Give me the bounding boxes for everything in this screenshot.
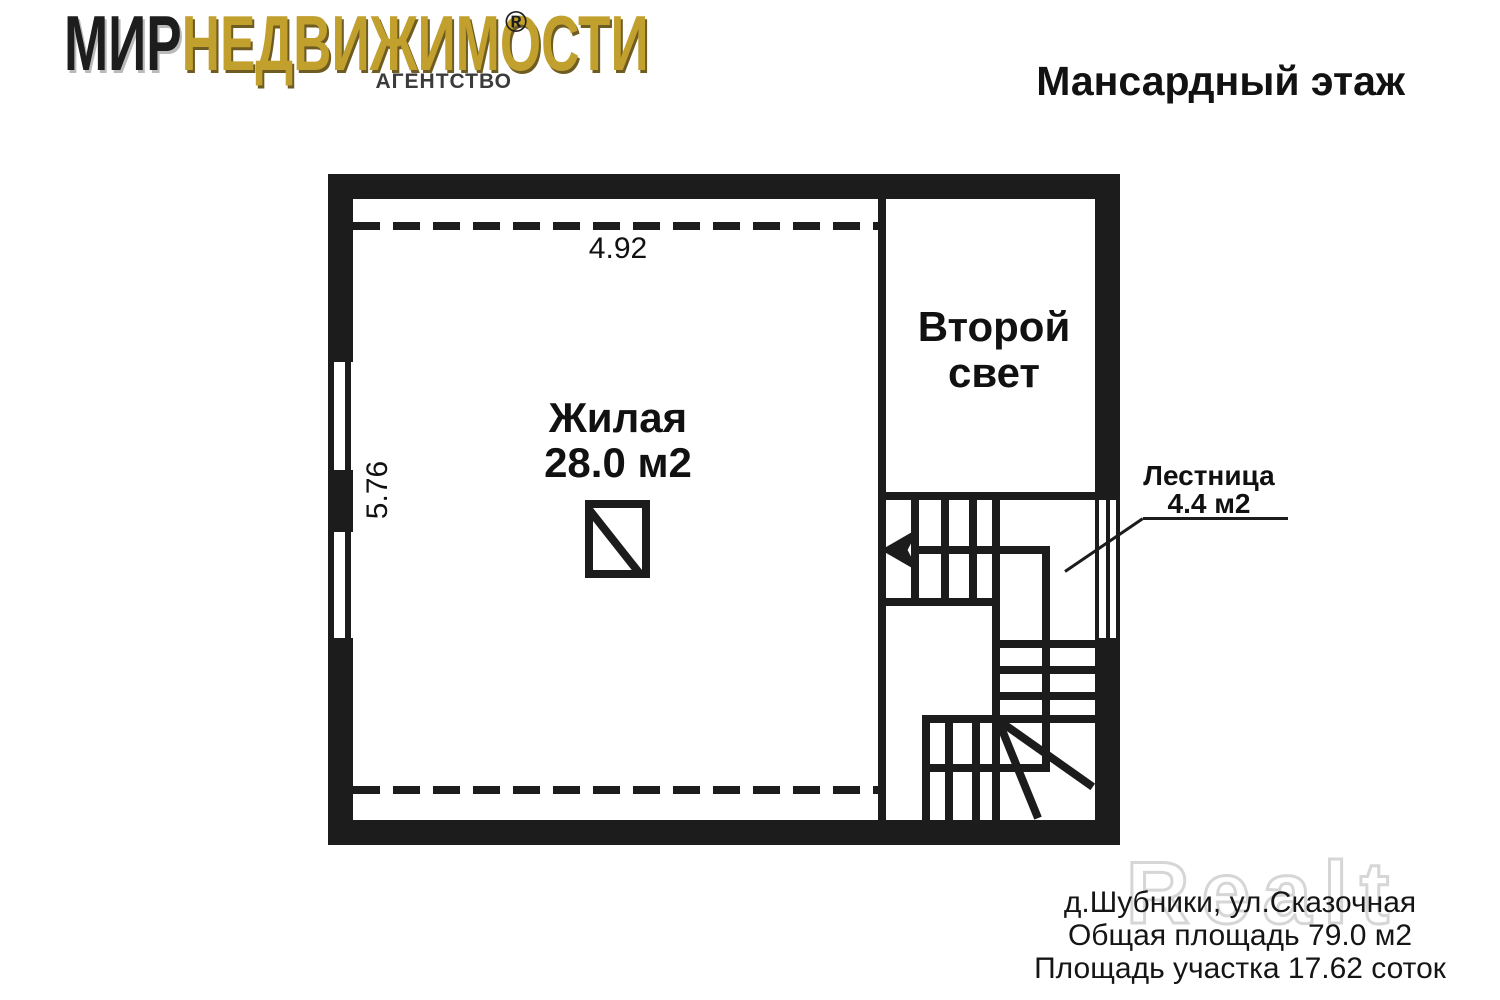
stairs-name: Лестница: [1109, 462, 1309, 490]
room-name-line1: Второй: [894, 304, 1094, 350]
property-lot-area: Площадь участка 17.62 соток: [1020, 952, 1460, 985]
room-area: 28.0 м2: [468, 440, 768, 485]
stairs-label: Лестница 4.4 м2: [1109, 462, 1309, 518]
wall-stair-top: [878, 492, 1120, 500]
stair-edge: [886, 598, 1000, 606]
window-line: [1095, 500, 1099, 638]
window-line: [328, 362, 334, 470]
leader-line-horizontal: [1143, 517, 1288, 520]
property-total-area: Общая площадь 79.0 м2: [1020, 919, 1460, 952]
attic-dashed-line: [353, 786, 878, 794]
stair-winder-line: [996, 692, 1095, 700]
stair-winder-line: [996, 640, 1095, 648]
stair-winder-line: [996, 666, 1095, 674]
logo-part-mir: МИР: [64, 0, 182, 87]
stair-edge: [922, 764, 1050, 772]
room-label-living: Жилая 28.0 м2: [468, 395, 768, 485]
window-line: [328, 532, 334, 638]
registered-trademark-icon: ®: [505, 6, 527, 40]
wall-left: [328, 174, 353, 845]
dimension-width: 4.92: [558, 232, 678, 266]
wall-divider: [878, 199, 886, 820]
room-name-line2: свет: [894, 350, 1094, 396]
page-title: Мансардный этаж: [900, 58, 1405, 105]
room-label-second-light: Второй свет: [894, 304, 1094, 396]
window-line: [1116, 500, 1120, 638]
room-name: Жилая: [468, 395, 768, 440]
property-info: д.Шубники, ул.Сказочная Общая площадь 79…: [1020, 886, 1460, 985]
window-line: [345, 532, 351, 638]
floor-plan: 4.92 5.76 Жилая 28.0 м2 Второй свет: [328, 174, 1120, 845]
stair-walkline: [913, 546, 1050, 554]
roof-window-diagonal: [587, 508, 642, 575]
logo-subtitle: АГЕНТСТВО: [300, 70, 512, 94]
window-line: [345, 362, 351, 470]
dimension-height: 5.76: [361, 461, 395, 519]
roof-window-icon: [585, 500, 650, 578]
window-line: [1106, 500, 1110, 638]
wall-bottom: [328, 820, 1120, 845]
stairs-area: 4.4 м2: [1109, 490, 1309, 518]
property-address: д.Шубники, ул.Сказочная: [1020, 886, 1460, 919]
attic-dashed-line: [353, 222, 878, 230]
wall-top: [328, 174, 1120, 199]
stair-stringer: [1042, 546, 1050, 772]
